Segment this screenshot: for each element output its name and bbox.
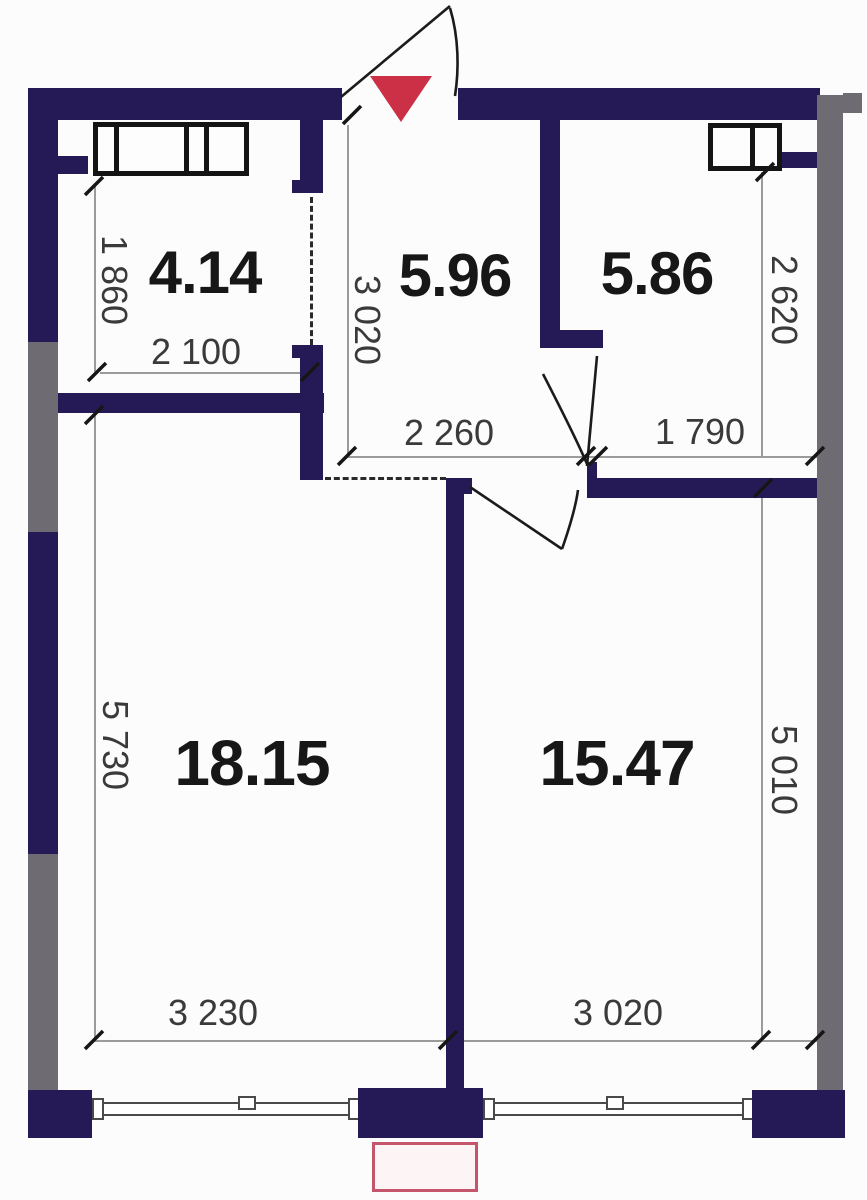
wall-stub-room414-mid [300,345,323,480]
floor-plan: 4.14 5.96 5.86 18.15 15.47 1 860 2 100 3… [0,0,867,1200]
dimension-label: 2 620 [764,200,804,400]
room-area-label: 4.14 [105,243,305,303]
dimension-label: 3 020 [347,220,387,420]
wall-stub-foot [292,180,323,193]
dimension-label: 2 260 [349,413,549,453]
wall-corner-bottom-right [752,1090,845,1138]
cabinet-divider [750,128,755,166]
wall-corner-bottom-left [28,1090,92,1138]
wall-top-left [28,88,342,120]
dimension-label: 5 010 [764,670,804,870]
opening-room414-dashed [310,197,313,345]
door-leaf-586 [587,356,597,466]
dimension-tick [343,106,361,124]
wall-stub-foot [292,345,323,358]
balcony-marker-box [372,1142,478,1192]
window-end-cap [483,1098,495,1120]
dimension-label: 1 790 [600,412,800,452]
wall-divider-1815-1547 [446,480,464,1090]
room-area-label: 15.47 [497,731,737,795]
wall-right-shared [817,95,843,1095]
wall-filler-cabinet [782,152,817,168]
door-swing-arc-586 [543,374,587,464]
wall-left-middle [28,532,58,854]
door-swing-arc-1547 [562,490,578,549]
dim-line-5010 [761,498,763,1040]
entrance-arrow-icon [370,76,432,122]
dimension-label: 3 230 [113,993,313,1033]
window-mullion [238,1096,256,1110]
wall-hall-586-partition [540,118,560,348]
wall-room586-south [587,478,817,498]
wardrobe-divider [114,127,119,171]
wall-pier-room414-left [58,156,88,174]
cabinet-symbol [708,123,782,171]
wall-tab-top-right [843,93,862,113]
wardrobe-divider [204,127,209,171]
wardrobe-divider [184,127,189,171]
wall-divider-top-block [446,478,472,494]
window-mullion [606,1096,624,1110]
wall-partition-foot [540,330,603,348]
room-area-label: 18.15 [132,731,372,795]
dim-line-2260-1790 [347,456,817,458]
wall-left-shared-lower [28,854,58,1090]
wall-left-shared-upper [28,342,58,532]
dimension-label: 2 100 [96,332,296,372]
door-leaf-1547 [470,487,562,549]
window-end-cap [92,1098,104,1120]
wall-top-right [458,88,820,120]
opening-hallway-dashed [325,477,446,480]
wall-left-upper [28,118,58,342]
wall-room414-south [58,393,324,413]
dimension-label: 5 730 [95,645,135,845]
entrance-door-swing-arc [450,8,458,96]
window-room-1815 [92,1102,358,1116]
wall-door-stop [587,462,597,480]
dimension-label: 3 020 [518,993,718,1033]
wall-pier-bottom-center [358,1088,483,1138]
room-area-label: 5.86 [557,244,757,304]
